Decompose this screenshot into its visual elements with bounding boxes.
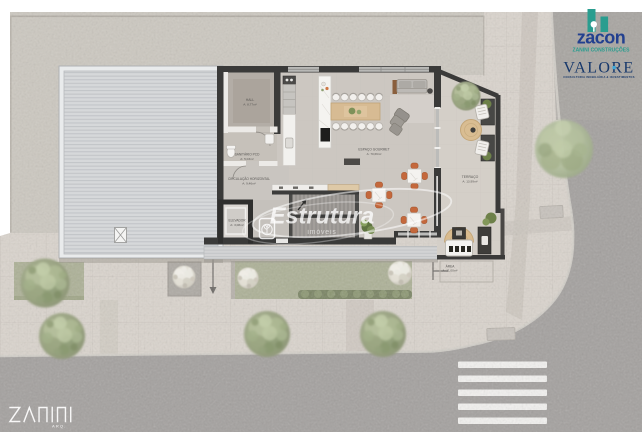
svg-text:VALORE: VALORE xyxy=(563,60,634,77)
svg-text:ESPAÇO GOURMET: ESPAÇO GOURMET xyxy=(358,148,389,152)
svg-text:A: 70,69m²: A: 70,69m² xyxy=(367,152,382,156)
svg-text:ARQ.: ARQ. xyxy=(52,424,67,429)
svg-text:imóveis: imóveis xyxy=(307,229,336,236)
svg-text:A: 9,46m²: A: 9,46m² xyxy=(242,182,255,186)
svg-text:A: 8,77m²: A: 8,77m² xyxy=(243,103,256,107)
svg-text:A: 11,00m²: A: 11,00m² xyxy=(443,269,458,273)
svg-text:zacon: zacon xyxy=(577,28,626,48)
svg-text:HALL: HALL xyxy=(246,98,255,102)
svg-text:ELEVADOR: ELEVADOR xyxy=(228,219,246,223)
svg-text:SANITÁRIO PCD: SANITÁRIO PCD xyxy=(235,153,260,157)
svg-text:A: 13,99m²: A: 13,99m² xyxy=(462,180,477,184)
svg-text:A: 5,03m²: A: 5,03m² xyxy=(240,157,253,161)
svg-text:ZANINI CONSTRUÇÕES: ZANINI CONSTRUÇÕES xyxy=(573,47,631,54)
svg-text:TERRAÇO: TERRAÇO xyxy=(462,175,479,179)
svg-text:Estrutura: Estrutura xyxy=(270,203,374,229)
svg-text:A: 3,08m²: A: 3,08m² xyxy=(230,223,243,227)
svg-text:CIRCULAÇÃO HORIZONTAL: CIRCULAÇÃO HORIZONTAL xyxy=(228,176,270,181)
